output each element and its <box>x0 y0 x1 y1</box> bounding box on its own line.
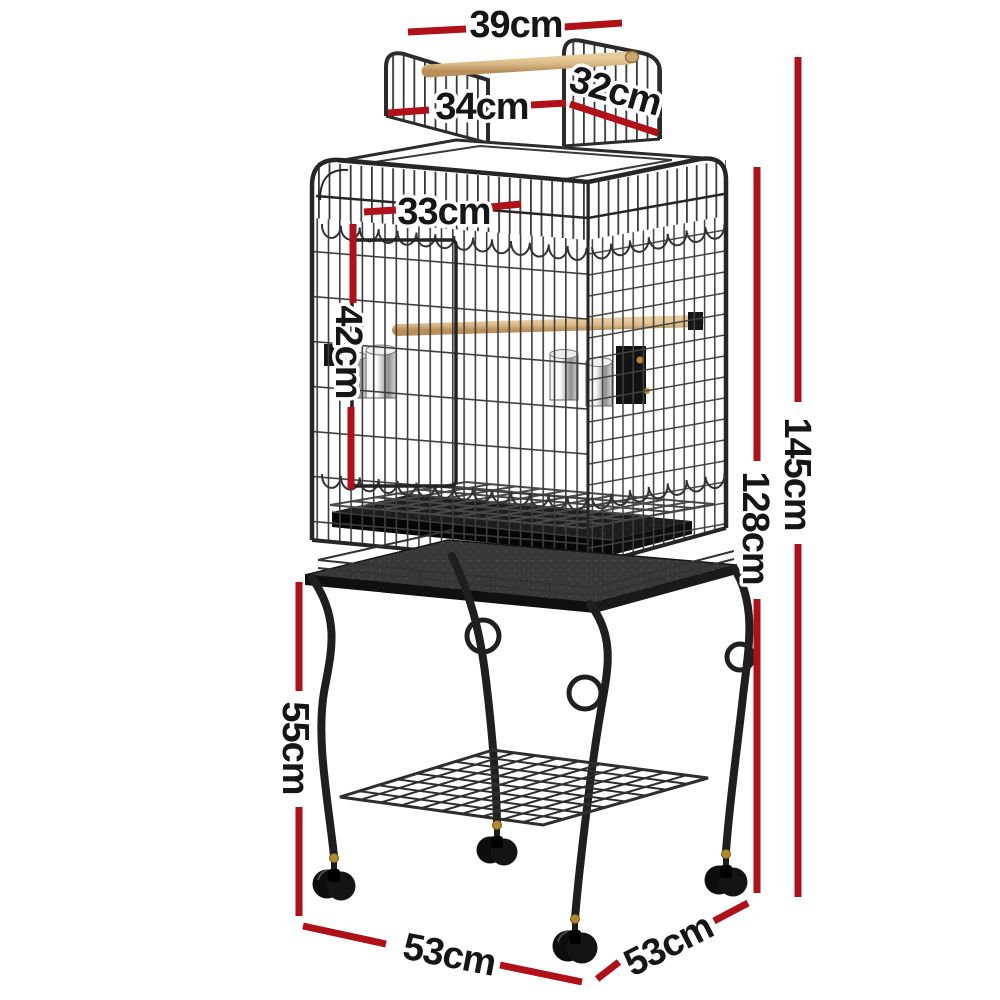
dimension-line-34-left <box>388 110 429 113</box>
dim-label-cage-height: 128cm <box>734 471 776 584</box>
birdcage-illustration: 39cm 34cm 32cm 33cm 42cm 145cm 128cm 55c… <box>0 0 1000 1000</box>
caster-wheel-left <box>313 850 356 901</box>
dimension-line-33-left <box>364 210 396 212</box>
cage-body <box>312 158 726 566</box>
dimension-line-53-depth-lower <box>597 962 619 979</box>
caster-wheel-back <box>477 818 518 866</box>
stand-platform <box>305 540 737 613</box>
brass-nut <box>571 915 580 924</box>
dim-label-base-depth: 53cm <box>617 905 719 985</box>
dim-label-top-perch-width: 39cm <box>469 4 562 46</box>
dimension-line-33-right <box>491 204 521 207</box>
dimension-line-53-depth-upper <box>714 903 748 921</box>
dim-label-stand-height: 55cm <box>274 701 316 794</box>
dimension-line-53-left <box>303 926 386 944</box>
dimension-line-34-right <box>531 103 566 105</box>
stand-leg-right <box>726 568 749 852</box>
storage-shelf <box>340 750 708 825</box>
dim-label-roof-opening: 33cm <box>397 191 490 233</box>
side-mesh <box>588 216 726 566</box>
dim-label-left-roof-panel: 34cm <box>435 86 528 128</box>
caster-wheel-right <box>705 846 748 897</box>
dimension-line-39-left <box>408 29 466 32</box>
brass-nut <box>330 854 339 863</box>
dim-label-upper-front-height: 42cm <box>327 305 369 398</box>
stand-legs <box>312 556 749 918</box>
perch-end-cap <box>626 52 639 63</box>
dim-label-total-height: 145cm <box>776 417 818 530</box>
dimension-line-39-right <box>564 23 622 27</box>
product-dimension-image: 39cm 34cm 32cm 33cm 42cm 145cm 128cm 55c… <box>0 0 1000 1000</box>
dimension-line-53-right <box>500 965 582 982</box>
stand <box>305 530 753 964</box>
brass-nut <box>493 821 502 830</box>
dim-label-base-width: 53cm <box>400 926 500 985</box>
caster-wheel-front <box>553 910 598 964</box>
brass-nut <box>722 850 731 859</box>
